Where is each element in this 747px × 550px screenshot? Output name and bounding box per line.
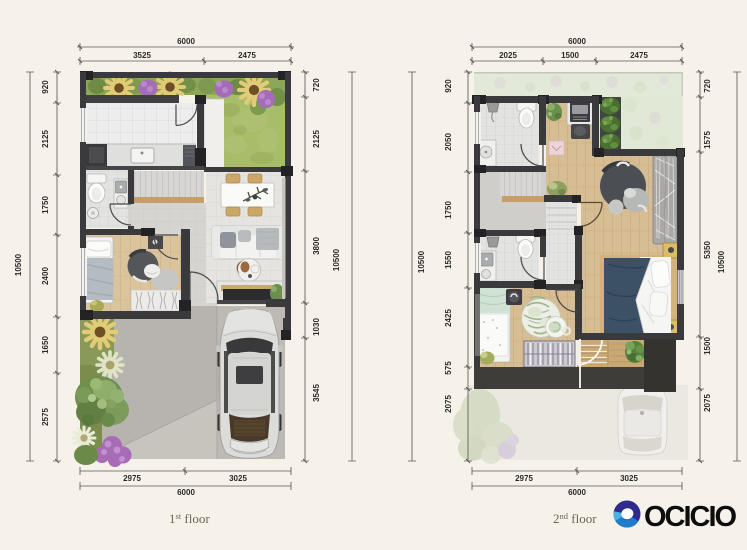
svg-text:6000: 6000: [177, 488, 195, 497]
svg-text:2025: 2025: [499, 51, 517, 60]
svg-text:2475: 2475: [630, 51, 648, 60]
svg-text:1750: 1750: [444, 201, 453, 219]
svg-text:1500: 1500: [561, 51, 579, 60]
svg-text:3525: 3525: [133, 51, 151, 60]
svg-text:2975: 2975: [123, 474, 141, 483]
svg-text:10500: 10500: [417, 250, 426, 273]
svg-text:1030: 1030: [312, 318, 321, 336]
svg-text:6000: 6000: [177, 37, 195, 46]
svg-text:6000: 6000: [568, 37, 586, 46]
svg-text:2475: 2475: [238, 51, 256, 60]
svg-text:720: 720: [312, 78, 321, 92]
svg-text:2975: 2975: [515, 474, 533, 483]
svg-text:575: 575: [444, 361, 453, 375]
svg-text:3025: 3025: [229, 474, 247, 483]
svg-text:1750: 1750: [41, 196, 50, 214]
svg-text:10500: 10500: [14, 253, 23, 276]
svg-text:5350: 5350: [703, 241, 712, 259]
svg-text:2075: 2075: [703, 394, 712, 412]
svg-text:3025: 3025: [620, 474, 638, 483]
svg-text:2050: 2050: [444, 133, 453, 151]
svg-text:1550: 1550: [444, 251, 453, 269]
svg-text:920: 920: [41, 80, 50, 94]
svg-text:2425: 2425: [444, 309, 453, 327]
svg-text:6000: 6000: [568, 488, 586, 497]
svg-text:3800: 3800: [312, 237, 321, 255]
svg-text:2400: 2400: [41, 267, 50, 285]
svg-text:2125: 2125: [312, 130, 321, 148]
svg-text:1500: 1500: [703, 337, 712, 355]
svg-text:1575: 1575: [703, 131, 712, 149]
svg-text:10500: 10500: [332, 248, 341, 271]
svg-text:2125: 2125: [41, 130, 50, 148]
svg-text:1650: 1650: [41, 336, 50, 354]
svg-text:OCICIO: OCICIO: [644, 501, 737, 533]
svg-text:2575: 2575: [41, 408, 50, 426]
svg-text:1st floor: 1st floor: [169, 511, 210, 526]
svg-text:3545: 3545: [312, 384, 321, 402]
svg-text:920: 920: [444, 79, 453, 93]
svg-text:10500: 10500: [717, 250, 726, 273]
svg-text:2075: 2075: [444, 395, 453, 413]
svg-text:720: 720: [703, 79, 712, 93]
